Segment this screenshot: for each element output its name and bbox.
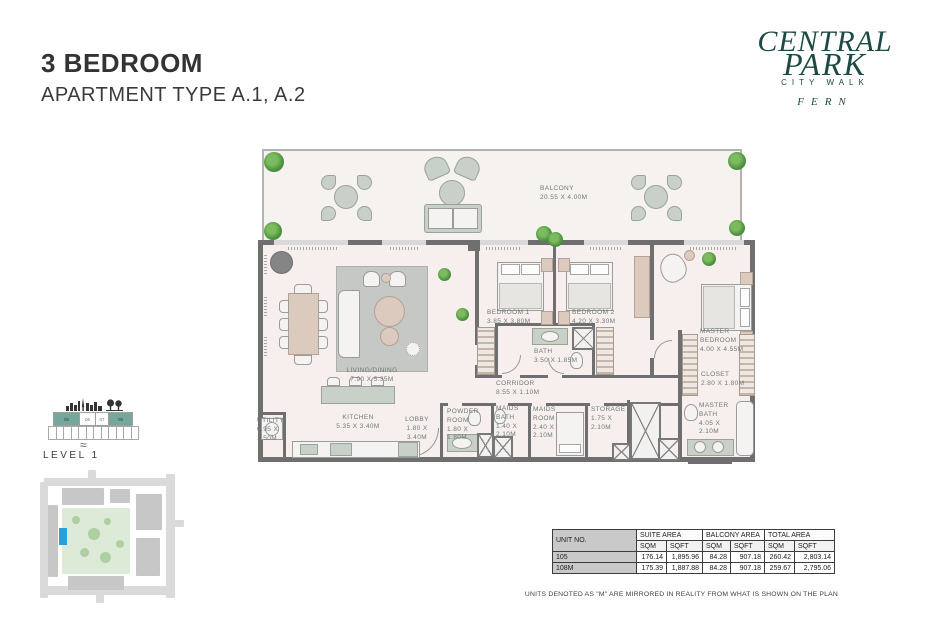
map-building bbox=[136, 538, 160, 576]
room-label-maids-room: MAIDS ROOM2.40 X 2.10M bbox=[533, 406, 563, 441]
room-label-corridor: CORRIDOR8.55 X 1.10M bbox=[496, 380, 556, 398]
room-label-maids-bath: MAIDS BATH1.40 X 2.10M bbox=[496, 405, 524, 440]
plant bbox=[702, 252, 716, 266]
balcony-sqft: 907.18 bbox=[731, 552, 765, 563]
shower bbox=[572, 327, 595, 350]
wardrobe bbox=[634, 256, 650, 318]
room-label-kitchen: KITCHEN5.35 X 3.40M bbox=[318, 414, 398, 432]
nightstand bbox=[740, 272, 753, 285]
window bbox=[264, 336, 267, 356]
total-sqm: 260.42 bbox=[765, 552, 795, 563]
room-label-storage: STORAGE1.75 X 2.10M bbox=[591, 406, 625, 432]
coffee-table-small bbox=[380, 327, 399, 346]
table-subheader-sqft: SQFT bbox=[795, 541, 835, 552]
logo-city-walk: CITY WALK bbox=[735, 78, 915, 87]
wall bbox=[553, 245, 556, 323]
pillow bbox=[740, 308, 750, 327]
balcony-chair bbox=[357, 175, 372, 190]
suite-sqm: 176.14 bbox=[637, 552, 667, 563]
closet-wardrobe bbox=[682, 334, 698, 396]
window bbox=[690, 247, 738, 250]
basin bbox=[694, 441, 706, 453]
level-strip-bottom-row bbox=[48, 426, 138, 440]
level-label: LEVEL 1 bbox=[43, 450, 100, 461]
room-label-bedroom-1: BEDROOM 13.85 X 3.80M bbox=[487, 309, 545, 327]
side-table bbox=[684, 250, 695, 261]
wall bbox=[650, 245, 654, 340]
plant bbox=[729, 220, 745, 236]
logo-fern: FERN bbox=[735, 96, 915, 108]
map-building bbox=[68, 576, 124, 590]
basin bbox=[712, 441, 724, 453]
sofa bbox=[338, 290, 360, 358]
fridge bbox=[398, 442, 418, 457]
dining-chair bbox=[318, 318, 328, 331]
table-row: 105 176.14 1,895.96 84.28 907.18 260.42 … bbox=[553, 552, 835, 563]
map-road bbox=[166, 474, 175, 598]
level-unit-cell[interactable]: 07 bbox=[95, 412, 109, 426]
round-table bbox=[270, 251, 293, 274]
stove bbox=[330, 443, 352, 456]
wall bbox=[495, 323, 498, 375]
window bbox=[264, 254, 267, 274]
wardrobe bbox=[596, 327, 614, 375]
pillow bbox=[740, 288, 750, 307]
basin bbox=[541, 331, 559, 342]
wall bbox=[688, 457, 732, 464]
map-road bbox=[40, 482, 48, 598]
room-label-powder-room: POWDER ROOM1.80 X 1.80M bbox=[447, 408, 481, 443]
pillow bbox=[559, 444, 581, 453]
wall bbox=[528, 403, 531, 457]
room-label-master-bath: MASTER BATH4.05 X 2.10M bbox=[699, 402, 739, 437]
balcony-table bbox=[334, 185, 358, 209]
balcony-chair bbox=[631, 206, 646, 221]
room-label-bath: BATH3.50 X 1.85M bbox=[534, 348, 586, 366]
map-tree bbox=[72, 516, 80, 524]
park-trees-icon bbox=[106, 399, 123, 411]
armchair bbox=[363, 271, 380, 287]
pillow bbox=[590, 264, 609, 275]
nightstand bbox=[541, 258, 553, 272]
plant bbox=[728, 152, 746, 170]
dining-chair bbox=[279, 300, 289, 313]
wardrobe bbox=[477, 327, 495, 375]
blanket bbox=[499, 283, 542, 309]
wall bbox=[475, 375, 502, 378]
pouf bbox=[406, 342, 420, 356]
blanket bbox=[568, 283, 611, 309]
unit-number: 105 bbox=[553, 552, 637, 563]
window bbox=[590, 247, 622, 250]
kitchen-island bbox=[321, 386, 395, 404]
table-row: 108M 175.39 1,887.88 84.28 907.18 259.67… bbox=[553, 563, 835, 574]
balcony-table bbox=[644, 185, 668, 209]
wall bbox=[562, 375, 680, 378]
map-road bbox=[96, 594, 104, 603]
kitchen-sink bbox=[300, 444, 318, 455]
map-tree bbox=[88, 528, 100, 540]
side-table bbox=[381, 273, 391, 283]
total-sqm: 259.67 bbox=[765, 563, 795, 574]
balcony-chair bbox=[321, 206, 336, 221]
balcony-chair bbox=[667, 206, 682, 221]
dining-chair bbox=[279, 318, 289, 331]
map-highlighted-building[interactable] bbox=[59, 528, 67, 545]
room-label-utility: UTILITY0.95 X 1.50M bbox=[257, 417, 283, 443]
dining-chair bbox=[279, 336, 289, 349]
elevator-shaft bbox=[630, 402, 661, 460]
dining-chair bbox=[318, 336, 328, 349]
table-header-total-area: TOTAL AREA bbox=[765, 530, 835, 541]
wall bbox=[348, 240, 382, 245]
dining-chair bbox=[294, 355, 312, 365]
map-building bbox=[48, 505, 58, 577]
balcony-chair bbox=[321, 175, 336, 190]
balcony-sqm: 84.28 bbox=[703, 563, 731, 574]
shaft bbox=[658, 438, 680, 461]
wall bbox=[258, 412, 286, 415]
coffee-table bbox=[374, 296, 405, 327]
window bbox=[486, 247, 522, 250]
map-road bbox=[88, 470, 96, 480]
balcony-chair bbox=[631, 175, 646, 190]
blanket bbox=[703, 286, 735, 329]
dining-table bbox=[288, 293, 319, 355]
wall bbox=[628, 240, 684, 245]
plant bbox=[456, 308, 469, 321]
brand-logo: CENTRAL PARK CITY WALK FERN bbox=[735, 28, 915, 108]
table-header-balcony-area: BALCONY AREA bbox=[703, 530, 765, 541]
balcony-chair bbox=[357, 206, 372, 221]
toilet bbox=[684, 404, 698, 421]
table-header-unit-no: UNIT NO. bbox=[553, 530, 637, 552]
map-tree bbox=[100, 552, 111, 563]
armchair bbox=[389, 271, 406, 287]
pillow bbox=[501, 264, 520, 275]
skyline-icon bbox=[66, 398, 102, 411]
page-subtitle: APARTMENT TYPE A.1, A.2 bbox=[41, 84, 306, 107]
table-subheader-sqm: SQM bbox=[637, 541, 667, 552]
wall bbox=[440, 403, 443, 457]
wall bbox=[585, 403, 588, 457]
level-unit-cell[interactable]: 08 bbox=[108, 412, 133, 426]
room-label-lobby: LOBBY1.80 X 3.40M bbox=[396, 416, 438, 442]
sofa-cushion bbox=[453, 208, 478, 229]
room-label-bedroom-2: BEDROOM 24.20 X 3.30M bbox=[572, 309, 630, 327]
suite-sqft: 1,895.96 bbox=[667, 552, 703, 563]
table-subheader-sqm: SQM bbox=[703, 541, 731, 552]
balcony-sqm: 84.28 bbox=[703, 552, 731, 563]
plant bbox=[438, 268, 451, 281]
page-title: 3 BEDROOM bbox=[41, 48, 203, 79]
unit-number: 108M bbox=[553, 563, 637, 574]
room-label-living-dining: LIVING/DINING7.90 X 5.35M bbox=[322, 367, 422, 385]
wall bbox=[262, 149, 742, 151]
plant bbox=[548, 232, 563, 247]
map-tree bbox=[80, 548, 89, 557]
window bbox=[264, 296, 267, 316]
total-sqft: 2,795.06 bbox=[795, 563, 835, 574]
mirrored-units-footnote: UNITS DENOTED AS "M" ARE MIRRORED IN REA… bbox=[508, 591, 838, 598]
level-unit-cell[interactable]: 05 bbox=[53, 412, 80, 426]
table-subheader-sqm: SQM bbox=[765, 541, 795, 552]
plant bbox=[264, 152, 284, 172]
map-road bbox=[174, 520, 184, 527]
room-label-master-bedroom: MASTER BEDROOM4.00 X 4.55M bbox=[700, 328, 744, 354]
table-subheader-sqft: SQFT bbox=[731, 541, 765, 552]
map-building bbox=[136, 494, 162, 530]
shaft bbox=[612, 443, 631, 461]
pillow bbox=[570, 264, 589, 275]
level-strip-top-row: 05 06 07 08 bbox=[53, 412, 132, 426]
suite-sqft: 1,887.88 bbox=[667, 563, 703, 574]
room-label-closet: CLOSET2.80 X 1.80M bbox=[701, 371, 749, 389]
nightstand bbox=[558, 258, 570, 272]
level-unit-cell[interactable]: 06 bbox=[79, 412, 96, 426]
map-tree bbox=[116, 540, 124, 548]
map-building bbox=[110, 489, 130, 503]
suite-sqm: 175.39 bbox=[637, 563, 667, 574]
table-subheader-sqft: SQFT bbox=[667, 541, 703, 552]
wall bbox=[520, 375, 548, 378]
table-header-suite-area: SUITE AREA bbox=[637, 530, 703, 541]
dining-chair bbox=[318, 300, 328, 313]
room-label-balcony: BALCONY20.55 X 4.00M bbox=[540, 185, 620, 203]
pillow bbox=[521, 264, 540, 275]
balcony-chair bbox=[667, 175, 682, 190]
nightstand bbox=[558, 311, 570, 325]
sofa-cushion bbox=[428, 208, 453, 229]
window bbox=[288, 247, 338, 250]
map-building bbox=[62, 488, 104, 505]
balcony-sqft: 907.18 bbox=[731, 563, 765, 574]
total-sqft: 2,803.14 bbox=[795, 552, 835, 563]
area-table: UNIT NO. SUITE AREA BALCONY AREA TOTAL A… bbox=[552, 529, 835, 574]
dining-chair bbox=[294, 284, 312, 294]
map-tree bbox=[104, 518, 111, 525]
balcony-lounge-table bbox=[439, 180, 465, 206]
map-road bbox=[44, 478, 174, 486]
level-unit-cell bbox=[131, 426, 140, 440]
wall bbox=[443, 403, 448, 406]
window bbox=[390, 247, 420, 250]
plant bbox=[264, 222, 282, 240]
